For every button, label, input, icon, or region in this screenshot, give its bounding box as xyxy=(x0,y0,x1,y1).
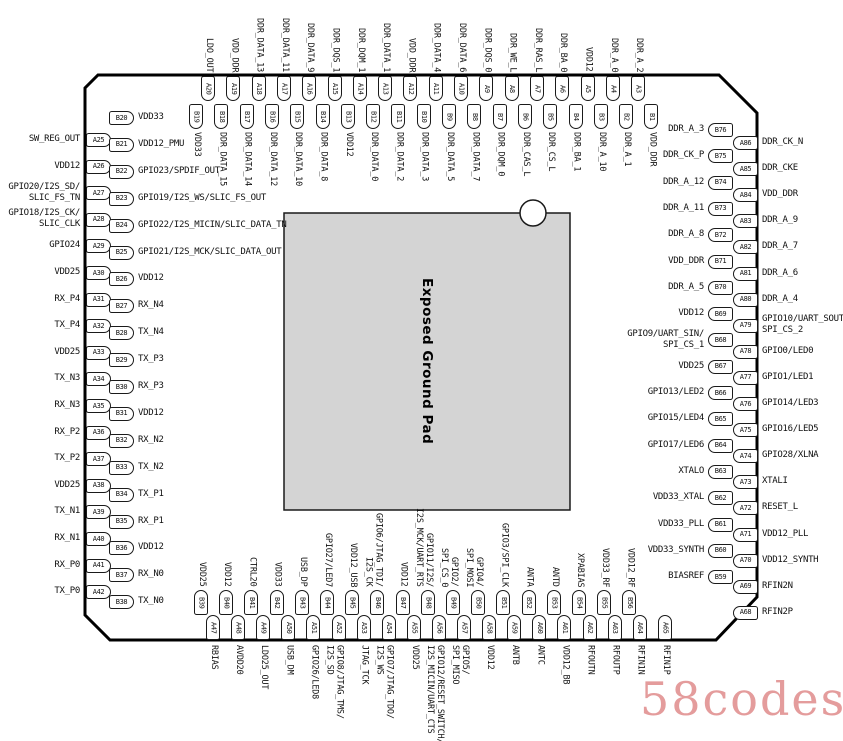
pin-B74[interactable]: B74 xyxy=(708,176,733,190)
pin-A3[interactable]: A3 xyxy=(631,76,645,101)
pin-id-B56: B56 xyxy=(626,597,633,608)
pin-id-B67: B67 xyxy=(715,363,726,370)
pin-B37[interactable]: B37 xyxy=(109,568,134,582)
pin-A40[interactable]: A40 xyxy=(86,532,111,546)
pin-label-line: GPIO24 xyxy=(0,240,80,251)
pin-B69[interactable]: B69 xyxy=(708,307,733,321)
pin-id-B33: B33 xyxy=(116,464,127,471)
pin-label-line: TX_P2 xyxy=(0,453,80,464)
pin-A14[interactable]: A14 xyxy=(353,76,367,101)
pin-label-line: SPI_CS_1 xyxy=(552,340,704,351)
pin-label-A28: GPIO18/I2S_CK/SLIC_CLK xyxy=(0,208,80,230)
pin-A75[interactable]: A75 xyxy=(733,423,758,437)
pin-B61[interactable]: B61 xyxy=(708,518,733,532)
pin-A10[interactable]: A10 xyxy=(454,76,468,101)
pin-A54[interactable]: A54 xyxy=(382,615,396,640)
pin-label-A57: GPIO5/SPI_MISO xyxy=(448,645,470,739)
pin-label-line: DDR_A_2 xyxy=(634,2,644,72)
pin-label-line: GPIO21/I2S_MCK/SLIC_DATA_OUT xyxy=(138,247,308,258)
pin-id-A17: A17 xyxy=(280,83,287,94)
pin-label-A13: DDR_DATA_1 xyxy=(379,2,391,72)
pin-label-line: VDD12 xyxy=(552,308,704,319)
pin-B8[interactable]: B8 xyxy=(467,104,481,129)
pin-A69[interactable]: A69 xyxy=(733,580,758,594)
pin-A86[interactable]: A86 xyxy=(733,136,758,150)
pin-id-B28: B28 xyxy=(116,330,127,337)
pin-id-A50: A50 xyxy=(285,622,292,633)
pin-A48[interactable]: A48 xyxy=(231,615,245,640)
pin-id-B60: B60 xyxy=(715,547,726,554)
pin-label-line: VDD12_RF xyxy=(625,428,635,587)
pin-B53[interactable]: B53 xyxy=(547,590,561,615)
pin-A28[interactable]: A28 xyxy=(86,213,111,227)
pin-label-B50: GPIO4/SPI_MOSI xyxy=(462,428,484,587)
pin-label-B56: VDD12_RF xyxy=(623,428,635,587)
pin-A29[interactable]: A29 xyxy=(86,239,111,253)
pin-A78[interactable]: A78 xyxy=(733,345,758,359)
pin-A15[interactable]: A15 xyxy=(328,76,342,101)
pin-B62[interactable]: B62 xyxy=(708,491,733,505)
pin-label-line: DDR_A_7 xyxy=(762,241,843,252)
pin-A70[interactable]: A70 xyxy=(733,554,758,568)
pin-A13[interactable]: A13 xyxy=(378,76,392,101)
pin-A35[interactable]: A35 xyxy=(86,399,111,413)
pin-B30[interactable]: B30 xyxy=(109,380,134,394)
pin-B22[interactable]: B22 xyxy=(109,165,134,179)
pin-id-A38: A38 xyxy=(93,482,104,489)
pin-label-B55: VDD33_RF xyxy=(598,428,610,587)
pin-B36[interactable]: B36 xyxy=(109,541,134,555)
pin-B26[interactable]: B26 xyxy=(109,272,134,286)
pin-B14[interactable]: B14 xyxy=(316,104,330,129)
pin-label-line: GPIO6/JTAG_TDI/ xyxy=(373,428,383,587)
pin-id-B32: B32 xyxy=(116,437,127,444)
pin-A76[interactable]: A76 xyxy=(733,397,758,411)
pin-A74[interactable]: A74 xyxy=(733,449,758,463)
pin-B13[interactable]: B13 xyxy=(341,104,355,129)
pin-B10[interactable]: B10 xyxy=(417,104,431,129)
pin-id-B23: B23 xyxy=(116,195,127,202)
pin-label-line: VDD25 xyxy=(410,645,420,739)
pin-A61[interactable]: A61 xyxy=(557,615,571,640)
pin-label-line: DDR_DATA_13 xyxy=(255,2,265,72)
pin-id-B45: B45 xyxy=(349,597,356,608)
pin-id-A3: A3 xyxy=(635,85,642,93)
pin-label-line: RX_P2 xyxy=(0,427,80,438)
pin-A73[interactable]: A73 xyxy=(733,475,758,489)
pin-label-A47: RBIAS xyxy=(207,645,219,739)
pin-label-line: DDR_A_5 xyxy=(552,282,704,293)
pin-A34[interactable]: A34 xyxy=(86,372,111,386)
pin-A77[interactable]: A77 xyxy=(733,371,758,385)
pin-A49[interactable]: A49 xyxy=(256,615,270,640)
pin-B59[interactable]: B59 xyxy=(708,570,733,584)
pin-B56[interactable]: B56 xyxy=(622,590,636,615)
pin-label-line: DDR_A_6 xyxy=(762,268,843,279)
pin-B50[interactable]: B50 xyxy=(471,590,485,615)
pin-label-B43: USB_DP xyxy=(296,428,308,587)
pin-A6[interactable]: A6 xyxy=(555,76,569,101)
pin-label-A61: VDD12_BB xyxy=(558,645,570,739)
pin-B72[interactable]: B72 xyxy=(708,228,733,242)
pin-label-line: SPI_MISO xyxy=(450,645,460,739)
pin-B43[interactable]: B43 xyxy=(295,590,309,615)
pin-B40[interactable]: B40 xyxy=(219,590,233,615)
pin-label-B29: TX_P3 xyxy=(138,354,308,365)
pin-id-B26: B26 xyxy=(116,276,127,283)
pin-label-line: DDR_CKE xyxy=(762,163,843,174)
pin-label-line: VDD25 xyxy=(552,361,704,372)
pin-A62[interactable]: A62 xyxy=(583,615,597,640)
pin-id-B43: B43 xyxy=(298,597,305,608)
pin-A31[interactable]: A31 xyxy=(86,293,111,307)
pin-A27[interactable]: A27 xyxy=(86,186,111,200)
pin-A84[interactable]: A84 xyxy=(733,188,758,202)
pin-label-line: USB_DP xyxy=(298,428,308,587)
pin-A72[interactable]: A72 xyxy=(733,501,758,515)
pin-B45[interactable]: B45 xyxy=(345,590,359,615)
pin-A19[interactable]: A19 xyxy=(226,76,240,101)
pin-A64[interactable]: A64 xyxy=(633,615,647,640)
pin-label-line: DDR_DATA_4 xyxy=(432,2,442,72)
pin-id-B75: B75 xyxy=(715,153,726,160)
pin-A7[interactable]: A7 xyxy=(530,76,544,101)
pin-A47[interactable]: A47 xyxy=(206,615,220,640)
pin-id-B20: B20 xyxy=(116,115,127,122)
pin-label-line: TX_P0 xyxy=(0,586,80,597)
pin-label-A85: DDR_CKE xyxy=(762,163,843,174)
pin-A38[interactable]: A38 xyxy=(86,479,111,493)
pin-id-A75: A75 xyxy=(740,427,751,434)
pin-id-A57: A57 xyxy=(461,622,468,633)
pin-label-line: TX_N4 xyxy=(138,327,308,338)
pin-label-line: RBIAS xyxy=(209,645,219,739)
pin-label-A71: VDD12_PLL xyxy=(762,529,843,540)
pin-label-B6: DDR_CAS_L xyxy=(519,132,531,306)
pin-label-line: TX_P4 xyxy=(0,320,80,331)
pin-label-A16: DDR_DATA_9 xyxy=(303,2,315,72)
pin-B75[interactable]: B75 xyxy=(708,149,733,163)
pin-id-A9: A9 xyxy=(483,85,490,93)
pin-B51[interactable]: B51 xyxy=(496,590,510,615)
pin-A42[interactable]: A42 xyxy=(86,585,111,599)
pin-label-A11: DDR_DATA_4 xyxy=(430,2,442,72)
pin-B7[interactable]: B7 xyxy=(493,104,507,129)
pin-label-line: GPIO9/UART_SIN/ xyxy=(552,329,704,340)
pin-id-A42: A42 xyxy=(93,589,104,596)
pin-id-A47: A47 xyxy=(210,622,217,633)
pin-label-B31: VDD12 xyxy=(138,408,308,419)
pin-label-A55: VDD25 xyxy=(408,645,420,739)
pin-id-B54: B54 xyxy=(576,597,583,608)
pin-A51[interactable]: A51 xyxy=(306,615,320,640)
pin-label-line: VDD25 xyxy=(197,428,207,587)
pin-B12[interactable]: B12 xyxy=(366,104,380,129)
pin-B44[interactable]: B44 xyxy=(320,590,334,615)
pin-A12[interactable]: A12 xyxy=(403,76,417,101)
pin-A68[interactable]: A68 xyxy=(733,606,758,620)
pin-A8[interactable]: A8 xyxy=(505,76,519,101)
pin-id-A15: A15 xyxy=(331,83,338,94)
pin-B38[interactable]: B38 xyxy=(109,595,134,609)
pin-label-line: RX_P0 xyxy=(0,560,80,571)
pin-label-B73: DDR_A_11 xyxy=(552,203,704,214)
pin-id-B7: B7 xyxy=(496,113,503,121)
pin-A57[interactable]: A57 xyxy=(457,615,471,640)
pin-label-A58: VDD12 xyxy=(483,645,495,739)
pin-A55[interactable]: A55 xyxy=(407,615,421,640)
pin-label-B53: ANTD xyxy=(548,428,560,587)
pin-B55[interactable]: B55 xyxy=(597,590,611,615)
pin-label-line: DDR_DATA_9 xyxy=(305,2,315,72)
pin-B46[interactable]: B46 xyxy=(370,590,384,615)
pin-B6[interactable]: B6 xyxy=(518,104,532,129)
pin-label-A86: DDR_CK_N xyxy=(762,137,843,148)
pin-B25[interactable]: B25 xyxy=(109,246,134,260)
pin-label-line: RX_N4 xyxy=(138,300,308,311)
pin-A36[interactable]: A36 xyxy=(86,426,111,440)
pin-label-A79: GPIO10/UART_SOUT,SPI_CS_2 xyxy=(762,314,843,336)
pin-A59[interactable]: A59 xyxy=(507,615,521,640)
pin-A71[interactable]: A71 xyxy=(733,528,758,542)
pin-A20[interactable]: A20 xyxy=(201,76,215,101)
pin-id-A30: A30 xyxy=(93,270,104,277)
pin-label-B14: DDR_DATA_8 xyxy=(317,132,329,306)
pin-B52[interactable]: B52 xyxy=(522,590,536,615)
pin-A26[interactable]: A26 xyxy=(86,160,111,174)
pin-label-line: GPIO28/XLNA xyxy=(762,450,843,461)
pin-A65[interactable]: A65 xyxy=(658,615,672,640)
pin-label-A73: XTALI xyxy=(762,476,843,487)
pin-label-B22: GPIO23/SPDIF_OUT xyxy=(138,166,308,177)
pin-B48[interactable]: B48 xyxy=(421,590,435,615)
pin-A83[interactable]: A83 xyxy=(733,214,758,228)
pin-label-B51: GPIO3/SPI_CLK xyxy=(497,428,509,587)
pin-label-B47: VDD12 xyxy=(397,428,409,587)
pin-label-A53: JTAG_TCK xyxy=(358,645,370,739)
pin-label-line: GPIO16/LED5 xyxy=(762,424,843,435)
pin-B63[interactable]: B63 xyxy=(708,465,733,479)
pin-A52[interactable]: A52 xyxy=(332,615,346,640)
pin-id-B64: B64 xyxy=(715,442,726,449)
pin-label-line: RFIN2P xyxy=(762,607,843,618)
pin-label-B27: RX_N4 xyxy=(138,300,308,311)
watermark: 58codes xyxy=(640,676,843,722)
pin-label-line: GPIO5/ xyxy=(460,645,470,739)
pin-B33[interactable]: B33 xyxy=(109,461,134,475)
pin-A37[interactable]: A37 xyxy=(86,452,111,466)
pin-label-line: SPI_CS_2 xyxy=(762,325,843,336)
pin-label-A34: TX_N3 xyxy=(0,373,80,384)
pin-A16[interactable]: A16 xyxy=(302,76,316,101)
pin-label-A59: ANTB xyxy=(508,645,520,739)
pin-id-B30: B30 xyxy=(116,384,127,391)
pin-id-B55: B55 xyxy=(601,597,608,608)
pin-id-B47: B47 xyxy=(399,597,406,608)
pin-label-line: DDR_BA_0 xyxy=(558,2,568,72)
pin-A80[interactable]: A80 xyxy=(733,293,758,307)
pin-label-A6: DDR_BA_0 xyxy=(556,2,568,72)
pin-A41[interactable]: A41 xyxy=(86,559,111,573)
pin-id-B62: B62 xyxy=(715,495,726,502)
pin-label-A60: ANTC xyxy=(533,645,545,739)
pin-A30[interactable]: A30 xyxy=(86,266,111,280)
pin-B71[interactable]: B71 xyxy=(708,255,733,269)
pin-B9[interactable]: B9 xyxy=(442,104,456,129)
pin-label-A29: GPIO24 xyxy=(0,240,80,251)
pin-B24[interactable]: B24 xyxy=(109,219,134,233)
pin-B60[interactable]: B60 xyxy=(708,544,733,558)
pin-B34[interactable]: B34 xyxy=(109,488,134,502)
pin-B32[interactable]: B32 xyxy=(109,434,134,448)
pin-A39[interactable]: A39 xyxy=(86,505,111,519)
pin-label-line: CTRL20 xyxy=(247,428,257,587)
pin-A32[interactable]: A32 xyxy=(86,319,111,333)
pin-label-A80: DDR_A_4 xyxy=(762,294,843,305)
pin-label-line: LDO_OUT xyxy=(204,2,214,72)
pin-label-B74: DDR_A_12 xyxy=(552,177,704,188)
pin-B41[interactable]: B41 xyxy=(244,590,258,615)
pin-id-B42: B42 xyxy=(273,597,280,608)
pin-A11[interactable]: A11 xyxy=(429,76,443,101)
pin-label-A30: VDD25 xyxy=(0,267,80,278)
pin-label-A19: VDD_DDR xyxy=(227,2,239,72)
pin-label-line: I2S_WS xyxy=(375,645,385,739)
pin-A4[interactable]: A4 xyxy=(606,76,620,101)
pin-label-A68: RFIN2P xyxy=(762,607,843,618)
pin-id-B37: B37 xyxy=(116,572,127,579)
pin-B70[interactable]: B70 xyxy=(708,281,733,295)
pin-label-A37: TX_P2 xyxy=(0,453,80,464)
pin-label-line: DDR_DATA_7 xyxy=(470,132,480,306)
pin-label-line: GPIO4/ xyxy=(474,428,484,587)
pin-label-A69: RFIN2N xyxy=(762,581,843,592)
pin-B29[interactable]: B29 xyxy=(109,353,134,367)
pin-B21[interactable]: B21 xyxy=(109,138,134,152)
pin-B28[interactable]: B28 xyxy=(109,326,134,340)
pin-B20[interactable]: B20 xyxy=(109,111,134,125)
pin-B47[interactable]: B47 xyxy=(396,590,410,615)
pin-label-B76: DDR_A_3 xyxy=(552,124,704,135)
pin-label-A56: GPIO12/RESET_SWITCH/I2S_MICIN/UART_CTS xyxy=(423,645,445,739)
pin-B27[interactable]: B27 xyxy=(109,299,134,313)
pin-label-line: GPIO27/LED7 xyxy=(323,428,333,587)
pin-B31[interactable]: B31 xyxy=(109,407,134,421)
pin-A79[interactable]: A79 xyxy=(733,319,758,333)
pin-label-B69: VDD12 xyxy=(552,308,704,319)
pin-id-A20: A20 xyxy=(205,83,212,94)
pin-B68[interactable]: B68 xyxy=(708,333,733,347)
pin-label-line: ANTD xyxy=(550,428,560,587)
pin-label-B30: RX_P3 xyxy=(138,381,308,392)
pin-B54[interactable]: B54 xyxy=(572,590,586,615)
pin-A18[interactable]: A18 xyxy=(252,76,266,101)
pin-label-line: VDD12 xyxy=(138,273,308,284)
pin-B23[interactable]: B23 xyxy=(109,192,134,206)
pin-B73[interactable]: B73 xyxy=(708,202,733,216)
pin-label-A27: GPIO20/I2S_SD/SLIC_FS_TN xyxy=(0,182,80,204)
pin-label-line: VDD33 xyxy=(273,428,283,587)
pin-label-B11: DDR_DATA_2 xyxy=(392,132,404,306)
pin-label-A33: VDD25 xyxy=(0,347,80,358)
pin-id-B65: B65 xyxy=(715,416,726,423)
pin-label-B7: DDR_DQM_0 xyxy=(494,132,506,306)
pin-label-line: VDD12 xyxy=(0,161,80,172)
pin-A9[interactable]: A9 xyxy=(479,76,493,101)
pin-label-line: I2S_SD xyxy=(325,645,335,739)
pin-id-B52: B52 xyxy=(525,597,532,608)
pin-A63[interactable]: A63 xyxy=(608,615,622,640)
pin-id-B2: B2 xyxy=(623,113,630,121)
pin-label-B70: DDR_A_5 xyxy=(552,282,704,293)
pin-B64[interactable]: B64 xyxy=(708,439,733,453)
pin-A25[interactable]: A25 xyxy=(86,133,111,147)
pin-id-B41: B41 xyxy=(248,597,255,608)
pin-label-line: GPIO22/I2S_MICIN/SLIC_DATA_TN xyxy=(138,220,308,231)
pin-A33[interactable]: A33 xyxy=(86,346,111,360)
pin-A56[interactable]: A56 xyxy=(432,615,446,640)
pin-A82[interactable]: A82 xyxy=(733,240,758,254)
pin-id-A28: A28 xyxy=(93,216,104,223)
pin-label-line: GPIO3/SPI_CLK xyxy=(499,428,509,587)
pin-label-line: GPIO20/I2S_SD/ xyxy=(0,182,80,193)
pin-label-line: ANTB xyxy=(510,645,520,739)
pin-label-line: DDR_A_4 xyxy=(762,294,843,305)
pin-B11[interactable]: B11 xyxy=(391,104,405,129)
pin-label-line: DDR_DQS_0 xyxy=(482,2,492,72)
pin-id-A64: A64 xyxy=(636,622,643,633)
pin-A17[interactable]: A17 xyxy=(277,76,291,101)
pin-label-A39: TX_N1 xyxy=(0,506,80,517)
pin-id-A39: A39 xyxy=(93,509,104,516)
pin-A53[interactable]: A53 xyxy=(357,615,371,640)
pin-label-line: VDD_DDR xyxy=(229,2,239,72)
pin-A50[interactable]: A50 xyxy=(281,615,295,640)
pin-id-A77: A77 xyxy=(740,374,751,381)
pin-id-A5: A5 xyxy=(584,85,591,93)
pin-B39[interactable]: B39 xyxy=(194,590,208,615)
pin-B76[interactable]: B76 xyxy=(708,123,733,137)
pin-A58[interactable]: A58 xyxy=(482,615,496,640)
pin-label-line: AVDD20 xyxy=(234,645,244,739)
pin-A85[interactable]: A85 xyxy=(733,162,758,176)
pin-id-A82: A82 xyxy=(740,244,751,251)
pin-label-line: DDR_DQM_0 xyxy=(496,132,506,306)
pin-label-A76: GPIO14/LED3 xyxy=(762,398,843,409)
pin-label-B48: GPIO11/I2S/I2S_MCK/UART_RTS xyxy=(412,428,434,587)
pin-B67[interactable]: B67 xyxy=(708,360,733,374)
pin-label-B67: VDD25 xyxy=(552,361,704,372)
pin-B66[interactable]: B66 xyxy=(708,386,733,400)
pin-label-line: DDR_DATA_11 xyxy=(280,2,290,72)
pin-label-line: GPIO23/SPDIF_OUT xyxy=(138,166,308,177)
pin-B49[interactable]: B49 xyxy=(446,590,460,615)
pin-A81[interactable]: A81 xyxy=(733,267,758,281)
pin-label-line: VDD12_USB xyxy=(348,428,358,587)
pin-B65[interactable]: B65 xyxy=(708,412,733,426)
pin-label-line: TX_P3 xyxy=(138,354,308,365)
pin-A5[interactable]: A5 xyxy=(581,76,595,101)
pin-id-A72: A72 xyxy=(740,505,751,512)
pin-id-B11: B11 xyxy=(395,111,402,122)
pin-label-line: RESET_L xyxy=(762,502,843,513)
pin-id-A86: A86 xyxy=(740,140,751,147)
pin-id-A26: A26 xyxy=(93,163,104,170)
pin-B35[interactable]: B35 xyxy=(109,515,134,529)
pin-A60[interactable]: A60 xyxy=(532,615,546,640)
pin-B42[interactable]: B42 xyxy=(270,590,284,615)
pin-label-line: RX_N3 xyxy=(0,400,80,411)
